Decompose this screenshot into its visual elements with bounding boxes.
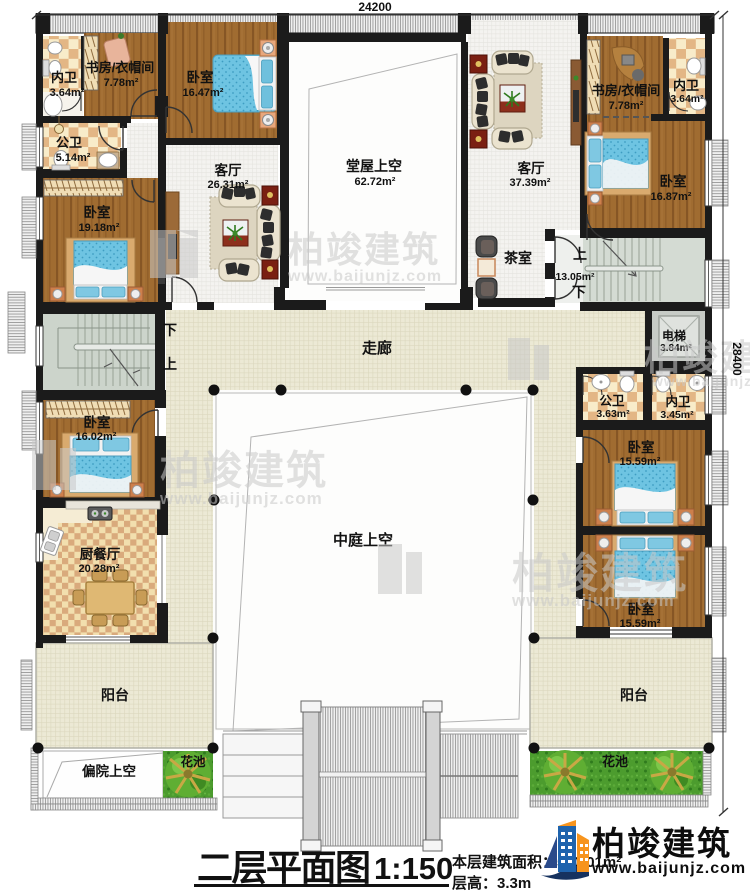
svg-text:阳台: 阳台: [101, 687, 129, 703]
svg-text:www.baijunjz.com: www.baijunjz.com: [591, 860, 746, 877]
svg-text:客厅: 客厅: [517, 160, 546, 176]
svg-text:7.78m²: 7.78m²: [609, 100, 644, 112]
svg-text:3.45m²: 3.45m²: [660, 409, 694, 421]
svg-text:15.59m²: 15.59m²: [620, 456, 661, 468]
svg-text:柏竣建筑: 柏竣建筑: [160, 449, 328, 493]
svg-text:卧室: 卧室: [84, 204, 111, 220]
svg-text:上: 上: [163, 356, 177, 372]
svg-text:书房/衣帽间: 书房/衣帽间: [592, 83, 661, 98]
svg-text:卧室: 卧室: [628, 439, 656, 455]
svg-text:层高：3.3m: 层高：3.3m: [452, 874, 531, 892]
svg-text:26.31m²: 26.31m²: [208, 179, 249, 191]
svg-text:上: 上: [573, 246, 587, 262]
svg-text:二层平面图: 二层平面图: [197, 847, 370, 888]
svg-text:柏竣建筑: 柏竣建筑: [512, 550, 688, 597]
svg-text:阳台: 阳台: [620, 687, 648, 703]
svg-text:20.28m²: 20.28m²: [79, 563, 120, 575]
svg-text:公卫: 公卫: [56, 135, 82, 150]
svg-text:公卫: 公卫: [599, 394, 625, 408]
svg-text:16.87m²: 16.87m²: [651, 191, 692, 203]
svg-text:19.18m²: 19.18m²: [79, 222, 120, 234]
svg-text:24200: 24200: [358, 0, 392, 14]
svg-text:15.59m²: 15.59m²: [620, 618, 661, 630]
svg-text:厨餐厅: 厨餐厅: [80, 546, 121, 562]
svg-text:客厅: 客厅: [214, 162, 242, 178]
svg-text:内卫: 内卫: [673, 78, 699, 93]
svg-text:16.02m²: 16.02m²: [76, 431, 117, 443]
svg-text:5.14m²: 5.14m²: [56, 152, 91, 164]
svg-text:书房/衣帽间: 书房/衣帽间: [86, 60, 155, 75]
svg-text:卧室: 卧室: [187, 69, 214, 85]
svg-text:堂屋上空: 堂屋上空: [346, 158, 402, 174]
svg-text:花池: 花池: [602, 754, 628, 769]
svg-text:卧室: 卧室: [660, 173, 688, 189]
svg-text:16.47m²: 16.47m²: [183, 87, 224, 99]
svg-text:www.baijunjz.com: www.baijunjz.com: [511, 591, 675, 610]
svg-text:62.72m²: 62.72m²: [355, 176, 396, 188]
svg-text:13.05m²: 13.05m²: [555, 271, 595, 283]
svg-text:37.39m²: 37.39m²: [510, 177, 551, 189]
svg-text:偏院上空: 偏院上空: [82, 763, 136, 779]
svg-text:www.baijunjz.com: www.baijunjz.com: [287, 268, 442, 285]
svg-text:3.63m²: 3.63m²: [596, 408, 630, 420]
svg-text:花池: 花池: [180, 754, 206, 769]
svg-text:内卫: 内卫: [665, 394, 691, 409]
svg-text:茶室: 茶室: [503, 250, 532, 266]
svg-text:走廊: 走廊: [362, 339, 392, 357]
svg-text:卧室: 卧室: [84, 414, 111, 430]
svg-text:www.baijunjz.com: www.baijunjz.com: [159, 489, 323, 508]
svg-text:3.64m²: 3.64m²: [50, 87, 85, 99]
svg-text:3.64m²: 3.64m²: [670, 93, 704, 105]
svg-text:28400: 28400: [730, 342, 744, 376]
svg-text:下: 下: [163, 322, 177, 338]
svg-text:柏竣建筑: 柏竣建筑: [288, 229, 440, 270]
svg-text:7.78m²: 7.78m²: [104, 77, 139, 89]
svg-text:1:150: 1:150: [374, 851, 453, 886]
svg-text:内卫: 内卫: [51, 70, 77, 85]
svg-text:下: 下: [572, 284, 586, 300]
svg-text:柏竣建筑: 柏竣建筑: [592, 825, 732, 862]
